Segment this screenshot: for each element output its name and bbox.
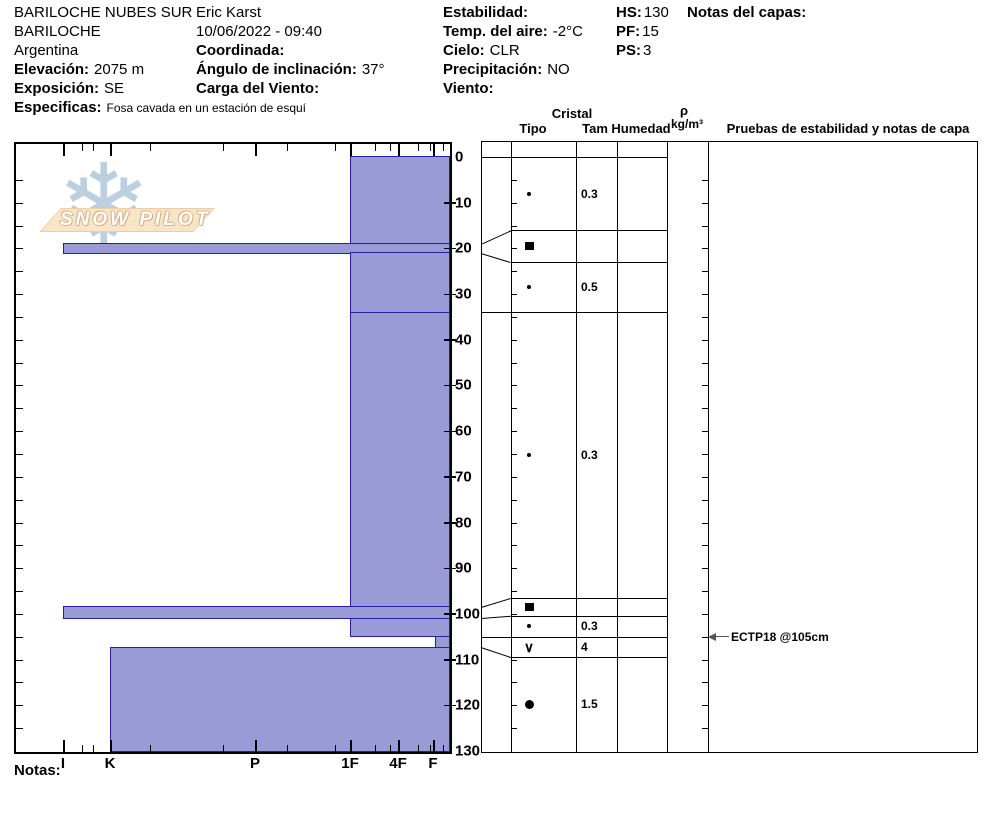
depth-label: 120 xyxy=(455,697,480,714)
depth-minor-tick xyxy=(702,568,708,569)
depth-minor-tick xyxy=(702,226,708,227)
layer-notes-label: Notas del capas: xyxy=(687,4,806,21)
layer-bar-1F xyxy=(350,312,450,608)
depth-minor-tick xyxy=(511,271,517,272)
depth-minor-tick xyxy=(702,705,708,706)
depth-minor-tick xyxy=(511,431,517,432)
depth-minor-tick xyxy=(511,614,517,615)
air-temp-field: Temp. del aire:-2°C xyxy=(443,23,583,40)
hardness-minor-tick xyxy=(82,745,83,752)
elevation-field: Elevación:2075 m xyxy=(14,61,144,78)
depth-label: 50 xyxy=(455,377,472,394)
depth-minor-tick xyxy=(16,637,23,638)
depth-minor-tick xyxy=(16,203,23,204)
depth-minor-tick xyxy=(511,180,517,181)
ps-field: PS:3 xyxy=(616,42,651,59)
hardness-major-tick xyxy=(63,144,65,156)
depth-minor-tick xyxy=(702,340,708,341)
depth-minor-tick xyxy=(511,523,517,524)
depth-minor-tick xyxy=(511,363,517,364)
hardness-major-tick xyxy=(398,144,400,156)
table-vline xyxy=(667,141,668,752)
test-arrow-icon xyxy=(708,633,716,641)
grain-size-value: 0.3 xyxy=(581,187,598,201)
site-name: BARILOCHE NUBES SUR xyxy=(14,4,192,21)
layer-bar-1F xyxy=(350,252,450,313)
depth-minor-tick xyxy=(511,226,517,227)
depth-minor-tick xyxy=(16,545,23,546)
grain-symbol-surface-hoar: ∨ xyxy=(524,640,534,654)
depth-minor-tick xyxy=(511,203,517,204)
depth-minor-tick xyxy=(16,431,23,432)
grain-symbol-ice-crust xyxy=(525,603,534,611)
depth-minor-tick xyxy=(16,180,23,181)
hardness-minor-tick xyxy=(150,144,151,151)
hardness-major-tick xyxy=(433,740,435,752)
depth-minor-tick xyxy=(702,545,708,546)
hardness-major-tick xyxy=(255,144,257,156)
hardness-minor-tick xyxy=(375,745,376,752)
depth-minor-tick xyxy=(702,363,708,364)
grain-symbol-round xyxy=(525,700,534,709)
depth-label: 20 xyxy=(455,240,472,257)
depth-minor-tick xyxy=(702,317,708,318)
hardness-label: F xyxy=(418,755,448,772)
grain-size-value: 4 xyxy=(581,640,588,654)
hardness-major-tick xyxy=(398,740,400,752)
country: Argentina xyxy=(14,42,78,59)
depth-minor-tick xyxy=(16,317,23,318)
hardness-minor-tick xyxy=(390,144,391,151)
hardness-label: P xyxy=(240,755,270,772)
col-header-tam: Tam xyxy=(582,121,608,136)
col-header-density-units: kg/m³ xyxy=(671,117,703,131)
table-row-line xyxy=(511,598,667,599)
depth-minor-tick xyxy=(16,705,23,706)
hardness-minor-tick xyxy=(430,745,431,752)
hardness-minor-tick xyxy=(443,144,444,151)
grain-size-value: 1.5 xyxy=(581,697,598,711)
depth-label: 30 xyxy=(455,286,472,303)
test-arrow-shaft xyxy=(716,636,729,638)
depth-minor-tick xyxy=(511,591,517,592)
depth-minor-tick xyxy=(16,682,23,683)
depth-label: 90 xyxy=(455,560,472,577)
datetime: 10/06/2022 - 09:40 xyxy=(196,23,322,40)
depth-minor-tick xyxy=(16,454,23,455)
hardness-minor-tick xyxy=(443,745,444,752)
depth-minor-tick xyxy=(702,180,708,181)
depth-label: 130 xyxy=(455,742,480,759)
depth-minor-tick xyxy=(16,294,23,295)
hardness-minor-tick xyxy=(93,745,94,752)
depth-label: 70 xyxy=(455,468,472,485)
hardness-major-tick xyxy=(350,740,352,752)
hardness-minor-tick xyxy=(287,144,288,151)
observer: Eric Karst xyxy=(196,4,261,21)
hardness-major-tick xyxy=(350,144,352,156)
depth-minor-tick xyxy=(702,454,708,455)
hardness-minor-tick xyxy=(430,144,431,151)
grain-size-value: 0.5 xyxy=(581,280,598,294)
hardness-minor-tick xyxy=(335,745,336,752)
depth-minor-tick xyxy=(702,385,708,386)
depth-minor-tick xyxy=(702,271,708,272)
depth-minor-tick xyxy=(702,203,708,204)
wind-loading-field: Carga del Viento: xyxy=(196,80,319,97)
table-row-line xyxy=(481,157,667,158)
layer-bar-1F xyxy=(350,618,450,638)
depth-minor-tick xyxy=(702,614,708,615)
hardness-major-tick xyxy=(110,740,112,752)
depth-minor-tick xyxy=(16,340,23,341)
table-row-line xyxy=(511,230,667,231)
hardness-label: 1F xyxy=(335,755,365,772)
hardness-minor-tick xyxy=(418,144,419,151)
depth-minor-tick xyxy=(511,385,517,386)
depth-minor-tick xyxy=(16,728,23,729)
layer-table-frame xyxy=(481,141,978,753)
grain-symbol-ice-crust xyxy=(525,242,534,250)
table-row-line xyxy=(511,657,667,658)
depth-minor-tick xyxy=(16,614,23,615)
hardness-minor-tick xyxy=(390,745,391,752)
depth-minor-tick xyxy=(511,294,517,295)
layer-bar-1F xyxy=(350,156,450,244)
depth-label: 100 xyxy=(455,605,480,622)
depth-minor-tick xyxy=(16,271,23,272)
depth-minor-tick xyxy=(511,454,517,455)
hardness-minor-tick xyxy=(82,144,83,151)
hardness-minor-tick xyxy=(223,144,224,151)
depth-minor-tick xyxy=(702,477,708,478)
wind-field: Viento: xyxy=(443,80,494,97)
depth-label: 80 xyxy=(455,514,472,531)
col-header-cristal: Cristal xyxy=(552,106,592,121)
depth-minor-tick xyxy=(511,705,517,706)
col-header-density-symbol: ρ xyxy=(680,103,688,118)
depth-minor-tick xyxy=(511,682,517,683)
depth-minor-tick xyxy=(16,660,23,661)
depth-minor-tick xyxy=(16,568,23,569)
hardness-major-tick xyxy=(255,740,257,752)
depth-minor-tick xyxy=(511,317,517,318)
depth-minor-tick xyxy=(702,523,708,524)
depth-minor-tick xyxy=(702,408,708,409)
depth-minor-tick xyxy=(511,637,517,638)
depth-minor-tick xyxy=(511,500,517,501)
depth-minor-tick xyxy=(16,500,23,501)
depth-minor-tick xyxy=(511,728,517,729)
depth-minor-tick xyxy=(16,363,23,364)
depth-label: 10 xyxy=(455,194,472,211)
hardness-minor-tick xyxy=(93,144,94,151)
hardness-major-tick xyxy=(110,144,112,156)
depth-minor-tick xyxy=(702,431,708,432)
col-header-tipo: Tipo xyxy=(519,121,546,136)
table-row-line xyxy=(511,262,667,263)
profile-chart: Cristal Tipo Tam Humedad ρ kg/m³ Pruebas… xyxy=(0,0,994,840)
depth-minor-tick xyxy=(702,500,708,501)
table-row-line xyxy=(481,637,667,638)
hardness-major-tick xyxy=(433,144,435,156)
hardness-minor-tick xyxy=(335,144,336,151)
depth-minor-tick xyxy=(16,591,23,592)
layer-bar-K xyxy=(110,647,450,752)
col-header-humedad: Humedad xyxy=(611,121,670,136)
hardness-minor-tick xyxy=(287,745,288,752)
hardness-major-tick xyxy=(63,740,65,752)
aspect-field: Exposición:SE xyxy=(14,80,124,97)
grain-symbol-dot xyxy=(527,192,531,196)
depth-minor-tick xyxy=(702,728,708,729)
hardness-minor-tick xyxy=(223,745,224,752)
table-vline xyxy=(708,141,709,752)
depth-label: 40 xyxy=(455,331,472,348)
depth-minor-tick xyxy=(511,477,517,478)
grain-size-value: 0.3 xyxy=(581,619,598,633)
table-vline xyxy=(617,141,618,752)
table-row-line xyxy=(511,616,667,617)
depth-minor-tick xyxy=(702,682,708,683)
precipitation-field: Precipitación:NO xyxy=(443,61,570,78)
hardness-minor-tick xyxy=(418,745,419,752)
hardness-minor-tick xyxy=(375,144,376,151)
depth-label: 110 xyxy=(455,651,479,668)
depth-label: 0 xyxy=(455,149,463,166)
stability-field: Estabilidad: xyxy=(443,4,528,21)
table-vline xyxy=(576,141,577,752)
hardness-label: K xyxy=(95,755,125,772)
slope-angle-field: Ángulo de inclinación:37° xyxy=(196,61,385,78)
coordinates-field: Coordinada: xyxy=(196,42,284,59)
depth-minor-tick xyxy=(511,248,517,249)
depth-minor-tick xyxy=(16,408,23,409)
pf-field: PF:15 xyxy=(616,23,659,40)
table-row-line xyxy=(481,312,667,313)
hs-field: HS:130 xyxy=(616,4,669,21)
depth-label: 60 xyxy=(455,423,472,440)
depth-minor-tick xyxy=(702,591,708,592)
depth-minor-tick xyxy=(702,294,708,295)
sky-field: Cielo:CLR xyxy=(443,42,520,59)
region: BARILOCHE xyxy=(14,23,101,40)
hardness-minor-tick xyxy=(150,745,151,752)
depth-minor-tick xyxy=(702,660,708,661)
grain-size-value: 0.3 xyxy=(581,448,598,462)
depth-minor-tick xyxy=(702,248,708,249)
col-header-pruebas: Pruebas de estabilidad y notas de capa xyxy=(727,121,970,136)
specifics-field: Especificas:Fosa cavada en un estación d… xyxy=(14,99,306,116)
depth-minor-tick xyxy=(511,568,517,569)
depth-minor-tick xyxy=(16,523,23,524)
depth-minor-tick xyxy=(16,248,23,249)
notes-label: Notas: xyxy=(14,762,61,779)
snowpilot-profile-page: BARILOCHE NUBES SUR Eric Karst Estabilid… xyxy=(0,0,994,840)
depth-minor-tick xyxy=(16,226,23,227)
depth-minor-tick xyxy=(511,545,517,546)
depth-minor-tick xyxy=(16,477,23,478)
depth-minor-tick xyxy=(16,385,23,386)
depth-minor-tick xyxy=(511,660,517,661)
test-label: ECTP18 @105cm xyxy=(731,630,829,644)
depth-minor-tick xyxy=(511,340,517,341)
depth-minor-tick xyxy=(511,408,517,409)
hardness-label: 4F xyxy=(383,755,413,772)
